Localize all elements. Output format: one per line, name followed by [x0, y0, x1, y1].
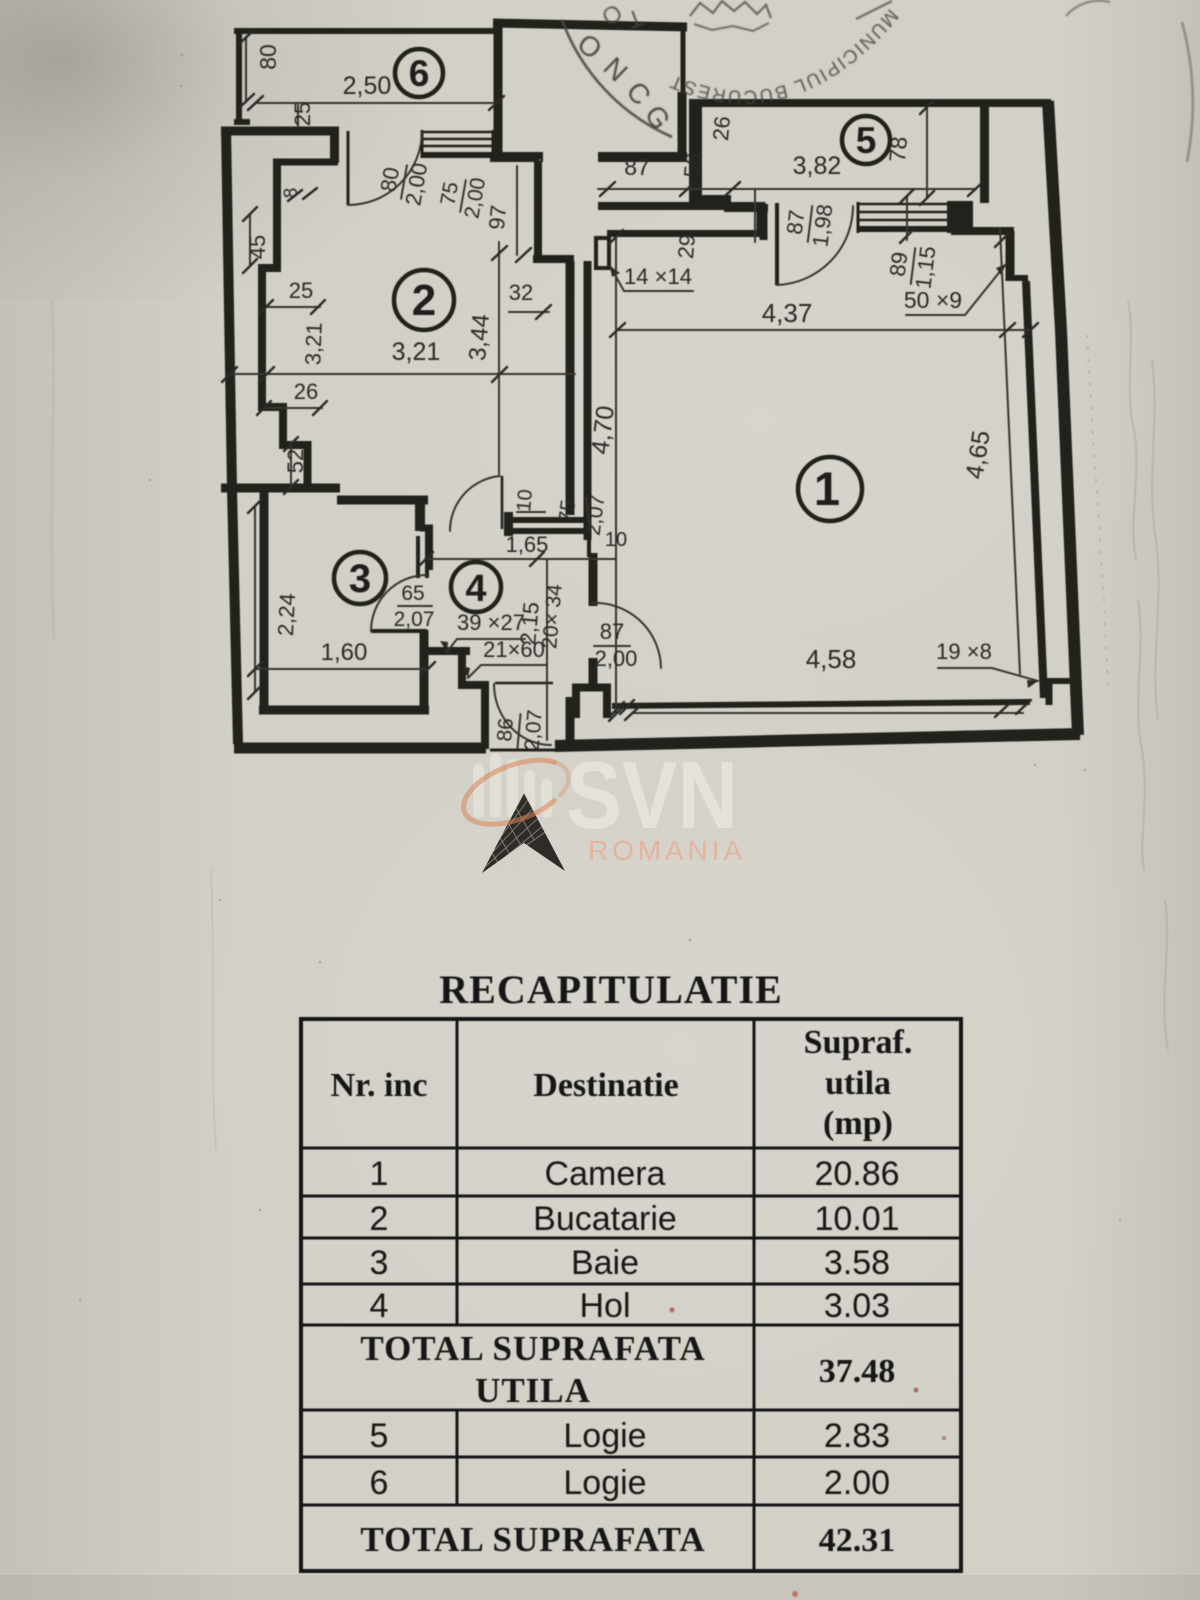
svg-text:21×60: 21×60: [483, 637, 545, 662]
svg-text:20.86: 20.86: [814, 1155, 899, 1193]
svg-text:Logie: Logie: [563, 1417, 646, 1455]
svg-text:87: 87: [600, 619, 624, 644]
svg-text:3,44: 3,44: [464, 313, 495, 362]
svg-text:32: 32: [509, 280, 533, 305]
svg-text:2: 2: [412, 276, 436, 325]
svg-text:10: 10: [513, 488, 537, 512]
svg-text:65: 65: [401, 582, 424, 605]
svg-text:37.48: 37.48: [819, 1353, 896, 1390]
svg-text:87: 87: [782, 209, 810, 236]
svg-text:8: 8: [281, 188, 302, 199]
svg-text:1,98: 1,98: [807, 203, 837, 249]
svg-text:80: 80: [375, 165, 404, 193]
svg-text:4: 4: [465, 568, 486, 610]
svg-text:26: 26: [708, 115, 735, 142]
svg-text:TOTAL SUPRAFATA: TOTAL SUPRAFATA: [360, 1329, 705, 1368]
svg-text:1: 1: [370, 1155, 389, 1193]
svg-text:75: 75: [555, 498, 581, 524]
svg-text:4,58: 4,58: [806, 644, 857, 674]
svg-text:1: 1: [814, 462, 840, 515]
svg-text:2.83: 2.83: [824, 1417, 890, 1455]
svg-text:Nr. inc: Nr. inc: [331, 1067, 428, 1104]
svg-text:14 ×14: 14 ×14: [624, 264, 692, 289]
svg-text:Hol: Hol: [579, 1287, 630, 1325]
svg-text:86: 86: [493, 717, 518, 742]
svg-text:4: 4: [370, 1287, 389, 1325]
svg-text:3,82: 3,82: [793, 152, 842, 180]
svg-text:Logie: Logie: [563, 1464, 646, 1502]
svg-text:56: 56: [679, 152, 706, 179]
svg-text:1,60: 1,60: [321, 639, 368, 666]
svg-text:29: 29: [673, 233, 700, 260]
svg-text:45: 45: [245, 235, 270, 259]
svg-text:1,15: 1,15: [910, 245, 940, 291]
svg-text:10.01: 10.01: [814, 1200, 899, 1238]
svg-text:3.58: 3.58: [824, 1244, 890, 1282]
svg-text:RECAPITULATIE: RECAPITULATIE: [439, 967, 782, 1012]
svg-text:2,07: 2,07: [394, 608, 435, 631]
svg-text:75: 75: [436, 180, 463, 207]
svg-text:Bucatarie: Bucatarie: [533, 1200, 677, 1238]
svg-text:1,65: 1,65: [506, 532, 549, 557]
svg-text:TOTAL SUPRAFATA: TOTAL SUPRAFATA: [360, 1520, 705, 1559]
svg-text:25: 25: [290, 102, 315, 126]
svg-text:(mp): (mp): [823, 1105, 893, 1142]
svg-text:2: 2: [370, 1200, 389, 1238]
svg-text:3.03: 3.03: [824, 1287, 890, 1325]
svg-text:Destinatie: Destinatie: [533, 1067, 678, 1104]
svg-text:78: 78: [884, 135, 912, 163]
svg-text:4,70: 4,70: [586, 404, 620, 456]
svg-text:5: 5: [370, 1417, 389, 1455]
svg-text:52: 52: [283, 449, 308, 473]
svg-text:2,24: 2,24: [273, 593, 300, 637]
svg-text:utila: utila: [825, 1065, 891, 1102]
svg-text:2,07: 2,07: [520, 709, 546, 752]
svg-text:6: 6: [370, 1464, 389, 1502]
svg-text:6: 6: [409, 53, 430, 94]
svg-text:3,21: 3,21: [300, 322, 326, 366]
svg-text:26: 26: [294, 379, 318, 404]
svg-text:3: 3: [349, 557, 371, 601]
svg-text:97: 97: [484, 204, 511, 231]
svg-text:42.31: 42.31: [819, 1522, 896, 1559]
svg-text:80: 80: [255, 44, 281, 70]
svg-text:10: 10: [605, 529, 627, 551]
svg-text:25: 25: [289, 278, 313, 303]
svg-text:2,00: 2,00: [595, 646, 638, 671]
svg-text:2.00: 2.00: [824, 1464, 890, 1502]
svg-text:19 ×8: 19 ×8: [936, 639, 992, 664]
svg-text:89: 89: [885, 251, 913, 278]
svg-text:Camera: Camera: [545, 1155, 666, 1193]
svg-text:Supraf.: Supraf.: [804, 1024, 913, 1061]
svg-text:87: 87: [624, 154, 650, 180]
svg-text:39 ×27: 39 ×27: [457, 610, 525, 635]
svg-text:50 ×9: 50 ×9: [904, 287, 962, 313]
svg-text:Baie: Baie: [571, 1244, 639, 1282]
svg-text:4,37: 4,37: [762, 298, 813, 328]
svg-text:2,50: 2,50: [343, 72, 392, 100]
svg-text:5: 5: [856, 120, 877, 161]
svg-text:ROMANIA: ROMANIA: [588, 835, 742, 866]
svg-text:3,21: 3,21: [392, 338, 441, 366]
svg-text:3: 3: [370, 1244, 389, 1282]
svg-text:UTILA: UTILA: [475, 1371, 591, 1410]
svg-text:SVN: SVN: [566, 742, 738, 849]
